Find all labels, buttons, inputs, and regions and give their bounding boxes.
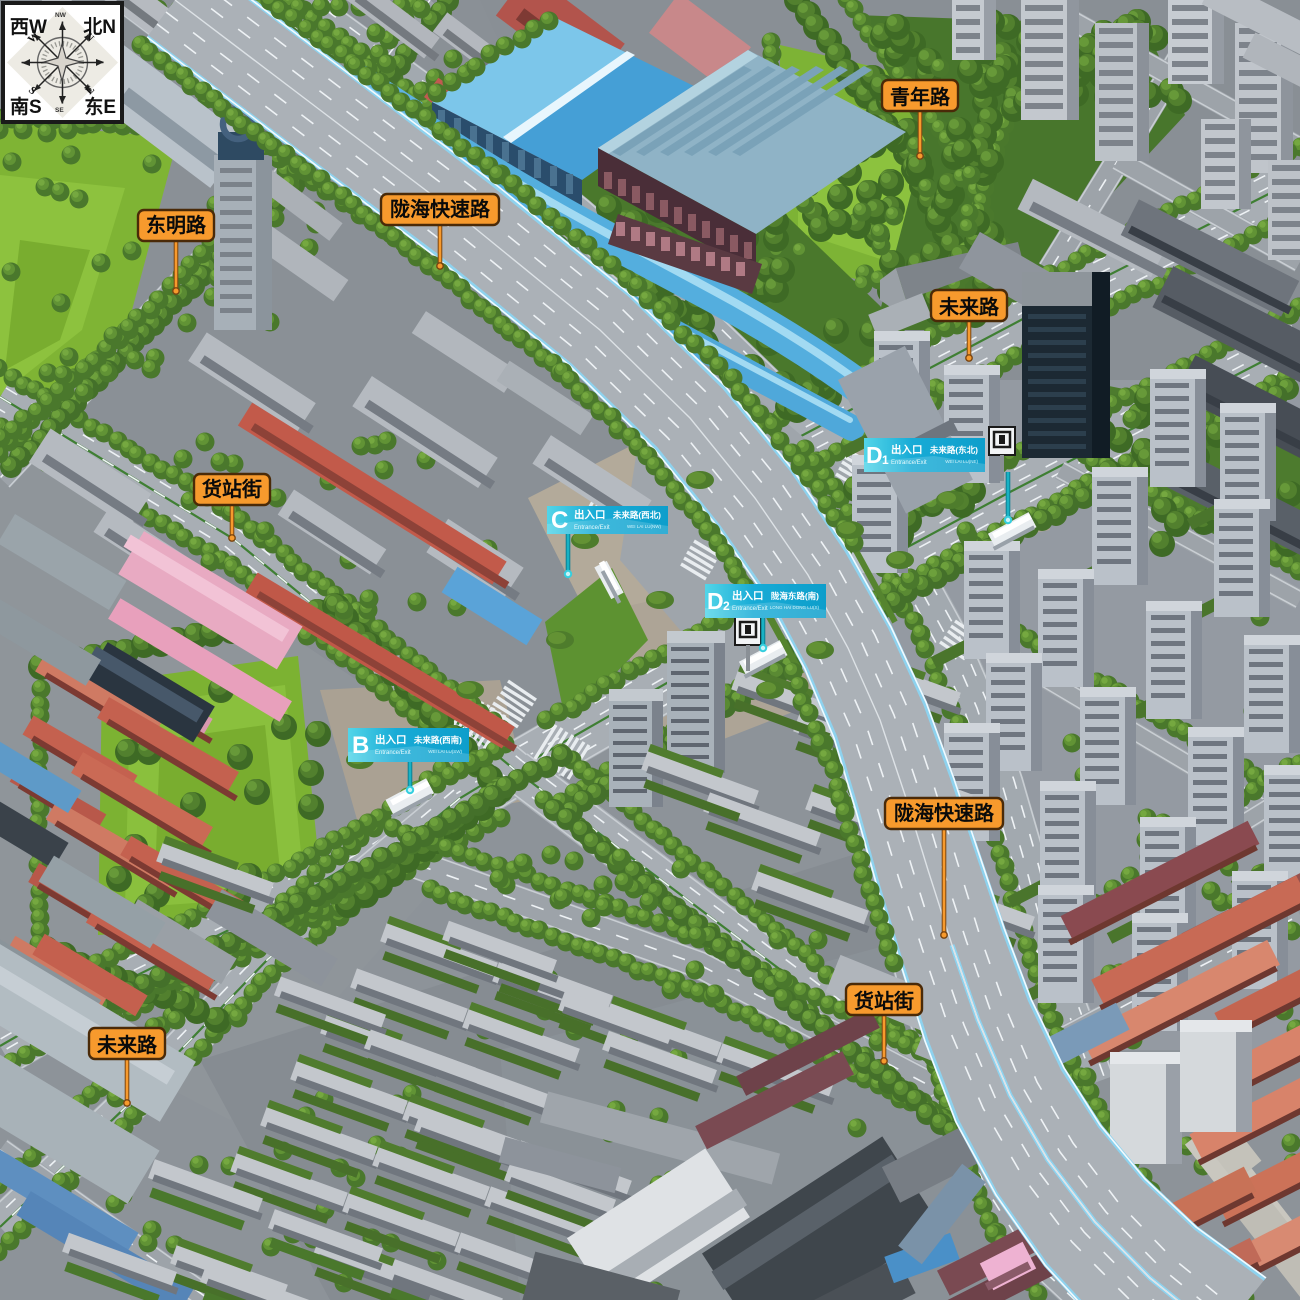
svg-text:出入口: 出入口 (732, 589, 764, 602)
svg-text:C: C (551, 507, 568, 534)
svg-text:货站街: 货站街 (202, 477, 262, 501)
svg-text:东明路: 东明路 (146, 213, 207, 237)
svg-text:Entrance/Exit: Entrance/Exit (375, 750, 411, 756)
svg-text:货站街: 货站街 (854, 989, 914, 1013)
svg-text:出入口: 出入口 (574, 508, 606, 521)
svg-text:1: 1 (882, 453, 889, 467)
svg-text:D: D (707, 588, 724, 614)
svg-text:未来路(西北): 未来路(西北) (612, 510, 661, 520)
svg-text:陇海快速路: 陇海快速路 (894, 801, 995, 825)
svg-text:WEI LAI LU(NW): WEI LAI LU(NW) (627, 524, 662, 529)
svg-text:南S: 南S (10, 96, 42, 118)
svg-text:Entrance/Exit: Entrance/Exit (891, 460, 927, 466)
svg-text:SE: SE (55, 107, 64, 114)
svg-text:未来路: 未来路 (97, 1033, 158, 1057)
svg-text:NW: NW (55, 12, 67, 19)
svg-text:陇海东路(南): 陇海东路(南) (771, 591, 819, 601)
svg-text:Entrance/Exit: Entrance/Exit (732, 606, 768, 612)
svg-text:未来路(西南): 未来路(西南) (413, 735, 462, 745)
svg-text:青年路: 青年路 (890, 85, 951, 109)
svg-text:B: B (352, 732, 369, 759)
svg-text:未来路: 未来路 (939, 295, 1000, 319)
svg-text:东E: 东E (84, 95, 116, 118)
svg-text:出入口: 出入口 (891, 443, 923, 456)
svg-text:WEI LAI LU(NE): WEI LAI LU(NE) (945, 459, 978, 464)
svg-text:2: 2 (723, 599, 730, 613)
svg-text:未来路(东北): 未来路(东北) (929, 445, 978, 455)
svg-text:出入口: 出入口 (375, 733, 407, 746)
svg-text:WEI LAI LU(SW): WEI LAI LU(SW) (428, 749, 462, 754)
svg-text:陇海快速路: 陇海快速路 (390, 197, 491, 221)
svg-text:D: D (866, 442, 883, 468)
svg-text:Entrance/Exit: Entrance/Exit (574, 525, 610, 531)
svg-text:LONG HAI DONG LU(S): LONG HAI DONG LU(S) (770, 605, 820, 610)
